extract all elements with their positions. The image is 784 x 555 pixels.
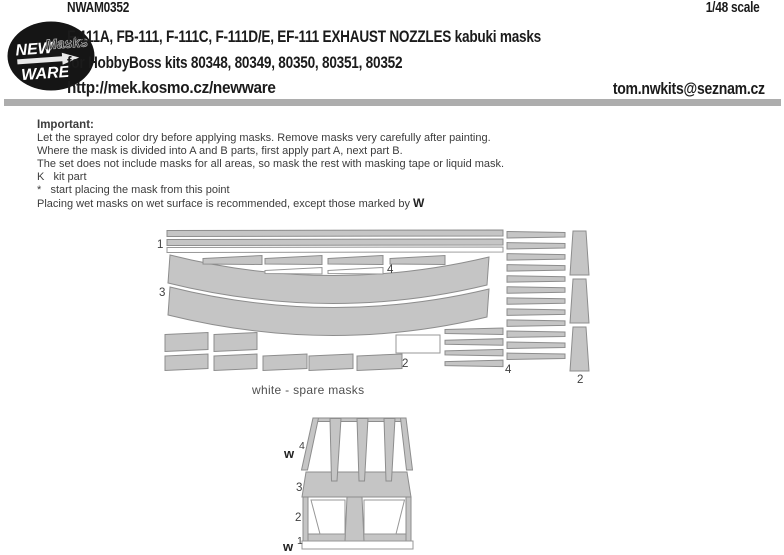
nozzle-opening-right <box>364 500 405 534</box>
spare-masks-caption: white - spare masks <box>251 383 364 397</box>
part4-strip <box>390 256 445 265</box>
part4-strip <box>445 349 503 356</box>
part1-strip <box>167 239 503 246</box>
part2-right-trapezoids <box>570 231 589 371</box>
part4-strip <box>507 331 565 338</box>
nozzle-band-part3 <box>302 472 411 497</box>
part2-mask <box>165 354 208 371</box>
part4-left-group <box>445 328 503 367</box>
part1-strip <box>167 247 503 253</box>
wet-label: w <box>282 539 294 554</box>
nozzle-right-edge <box>401 418 413 470</box>
part1-strip <box>167 230 503 237</box>
part4-spare-strip <box>328 268 383 275</box>
part2-mask <box>357 354 402 371</box>
part4-strip <box>445 328 503 335</box>
part4-strip <box>507 276 565 283</box>
part4-strip <box>507 353 565 360</box>
part3-label: 3 <box>159 287 165 299</box>
part3-label: 3 <box>296 482 302 494</box>
part2-label: 2 <box>402 358 408 370</box>
part2-mask <box>570 279 589 323</box>
part4-right-column <box>507 232 565 360</box>
part1-long-strips <box>167 230 503 253</box>
part2-mask <box>214 333 257 352</box>
part2-mask <box>309 354 353 371</box>
part4-spare-strip <box>265 268 322 275</box>
part4-label: 4 <box>505 364 512 376</box>
part2-mask <box>570 327 589 371</box>
part4-strip <box>203 256 262 265</box>
part4-strip <box>507 265 565 272</box>
spare-mask-rect <box>396 335 440 353</box>
part4-strip <box>507 287 565 294</box>
mask-sheet-diagram: 1 3 4 2 4 2 white - spare masks <box>157 230 589 397</box>
part2-label: 2 <box>295 512 301 524</box>
part4-strip <box>445 360 503 367</box>
nozzle-left-strip <box>303 497 308 541</box>
part2-mask <box>165 333 208 352</box>
part2-mask <box>263 354 307 371</box>
part4-strip <box>507 232 565 239</box>
instruction-sheet: NEW Masks WARE NWAM0352 1/48 scale F-111… <box>0 0 784 555</box>
diagrams-svg: 1 3 4 2 4 2 white - spare masks <box>0 0 784 555</box>
part4-strip <box>507 309 565 316</box>
part2-label: 2 <box>577 374 583 386</box>
part4-strip <box>507 243 565 250</box>
part4-label: 4 <box>299 440 305 452</box>
part2-bottom-rows <box>165 333 402 371</box>
nozzle-part1-bar <box>302 541 413 549</box>
part4-strip <box>507 254 565 261</box>
part4-strip <box>328 256 383 265</box>
part4-strip <box>507 298 565 305</box>
part2-mask <box>214 354 257 371</box>
part4-strip <box>265 256 322 265</box>
wet-label: w <box>283 446 295 461</box>
nozzle-center-strip <box>345 497 364 541</box>
part1-label: 1 <box>157 239 163 251</box>
nozzle-right-strip <box>406 497 411 541</box>
part1-label: 1 <box>297 535 303 547</box>
part2-mask <box>570 231 589 275</box>
nozzle-diagram: w 4 3 2 w 1 <box>282 418 413 554</box>
part4-strip <box>507 342 565 349</box>
part4-strip <box>445 339 503 346</box>
nozzle-opening-left <box>311 500 345 534</box>
part4-strip <box>507 320 565 327</box>
part4-label: 4 <box>387 264 394 276</box>
